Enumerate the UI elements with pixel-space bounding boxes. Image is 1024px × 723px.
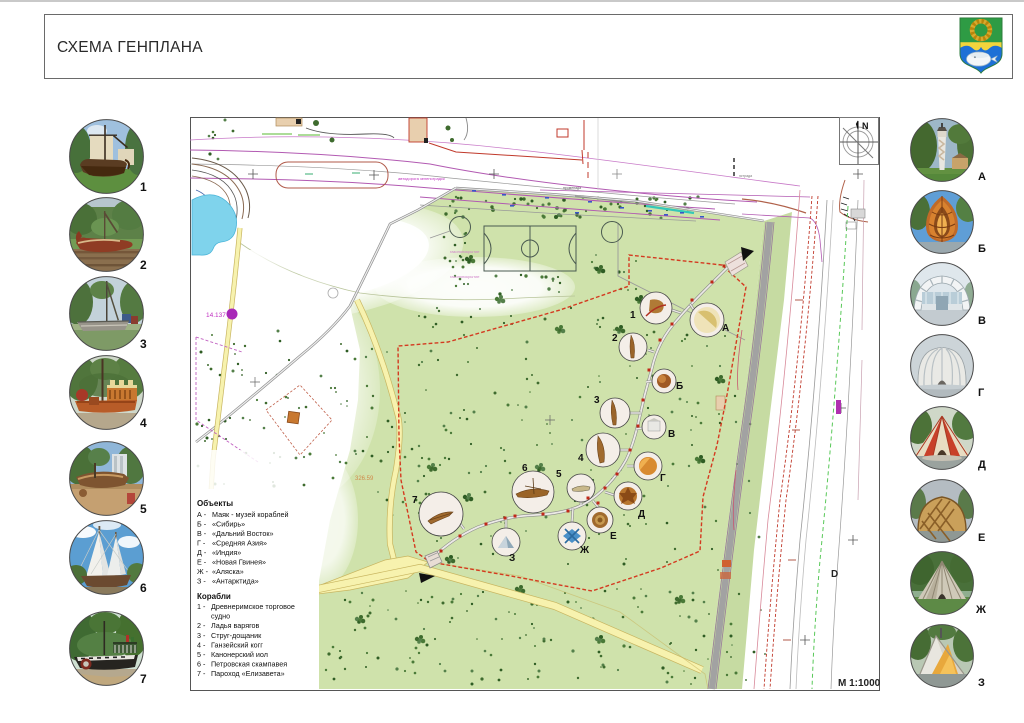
svg-text:Е -: Е - (197, 558, 207, 567)
svg-text:326.59: 326.59 (355, 476, 374, 482)
svg-text:З: З (509, 553, 515, 564)
svg-text:7: 7 (412, 495, 418, 506)
svg-text:2 -: 2 - (197, 621, 206, 630)
svg-text:Объекты: Объекты (197, 499, 233, 508)
svg-text:Петровская скампавея: Петровская скампавея (211, 660, 287, 669)
svg-text:D: D (831, 569, 838, 580)
svg-text:Д -: Д - (197, 548, 207, 557)
svg-text:Маяк - музей кораблей: Маяк - музей кораблей (212, 510, 289, 519)
svg-text:А -: А - (197, 510, 207, 519)
svg-text:автодорога зеленоградск: автодорога зеленоградск (398, 176, 445, 181)
svg-text:Б -: Б - (197, 520, 207, 529)
svg-text:М 1:1000: М 1:1000 (838, 678, 880, 689)
svg-text:Корабли: Корабли (197, 592, 231, 601)
svg-text:Ганзейский когг: Ганзейский когг (211, 640, 263, 649)
svg-text:«Аляска»: «Аляска» (212, 567, 244, 576)
svg-text:Б: Б (676, 381, 683, 392)
svg-text:Г: Г (660, 473, 666, 484)
svg-text:Пароход «Елизавета»: Пароход «Елизавета» (211, 669, 285, 678)
svg-text:3: 3 (594, 395, 600, 406)
svg-text:Д: Д (638, 509, 645, 520)
svg-text:эстрада: эстрада (739, 174, 752, 178)
svg-text:1: 1 (630, 310, 636, 321)
svg-text:З -: З - (197, 577, 206, 586)
svg-text:«Средняя Азия»: «Средняя Азия» (212, 539, 267, 548)
svg-text:В -: В - (197, 529, 207, 538)
svg-text:«Сибирь»: «Сибирь» (212, 520, 245, 529)
svg-text:6 -: 6 - (197, 660, 206, 669)
svg-text:газонопокрытие: газонопокрытие (450, 274, 480, 279)
svg-text:А: А (722, 323, 729, 334)
svg-text:3 -: 3 - (197, 631, 206, 640)
svg-text:«Дальний Восток»: «Дальний Восток» (212, 529, 274, 538)
svg-text:Ладья варягов: Ладья варягов (211, 621, 260, 630)
svg-text:Ж -: Ж - (197, 567, 209, 576)
svg-text:1 -: 1 - (197, 602, 206, 611)
svg-text:Е: Е (610, 531, 617, 542)
svg-text:Струг-дощаник: Струг-дощаник (211, 631, 262, 640)
svg-text:6: 6 (522, 463, 528, 474)
svg-text:Древнеримское торговое: Древнеримское торговое (211, 602, 295, 611)
svg-text:газонопокрытие: газонопокрытие (450, 249, 480, 254)
svg-text:14.137: 14.137 (206, 312, 226, 319)
svg-text:5: 5 (556, 469, 562, 480)
svg-text:4: 4 (578, 453, 584, 464)
svg-text:4 -: 4 - (197, 640, 206, 649)
svg-text:«Индия»: «Индия» (212, 548, 241, 557)
svg-text:Канонерский иол: Канонерский иол (211, 650, 268, 659)
svg-text:5 -: 5 - (197, 650, 206, 659)
svg-text:променада: променада (563, 186, 581, 190)
svg-text:Г -: Г - (197, 539, 206, 548)
svg-text:судно: судно (211, 612, 230, 621)
svg-text:«Антарктида»: «Антарктида» (212, 577, 259, 586)
svg-text:«Новая Гвинея»: «Новая Гвинея» (212, 558, 266, 567)
svg-text:N: N (862, 121, 869, 131)
svg-text:В: В (668, 429, 675, 440)
svg-text:Ж: Ж (579, 545, 590, 556)
svg-text:7 -: 7 - (197, 669, 206, 678)
svg-text:2: 2 (612, 333, 618, 344)
